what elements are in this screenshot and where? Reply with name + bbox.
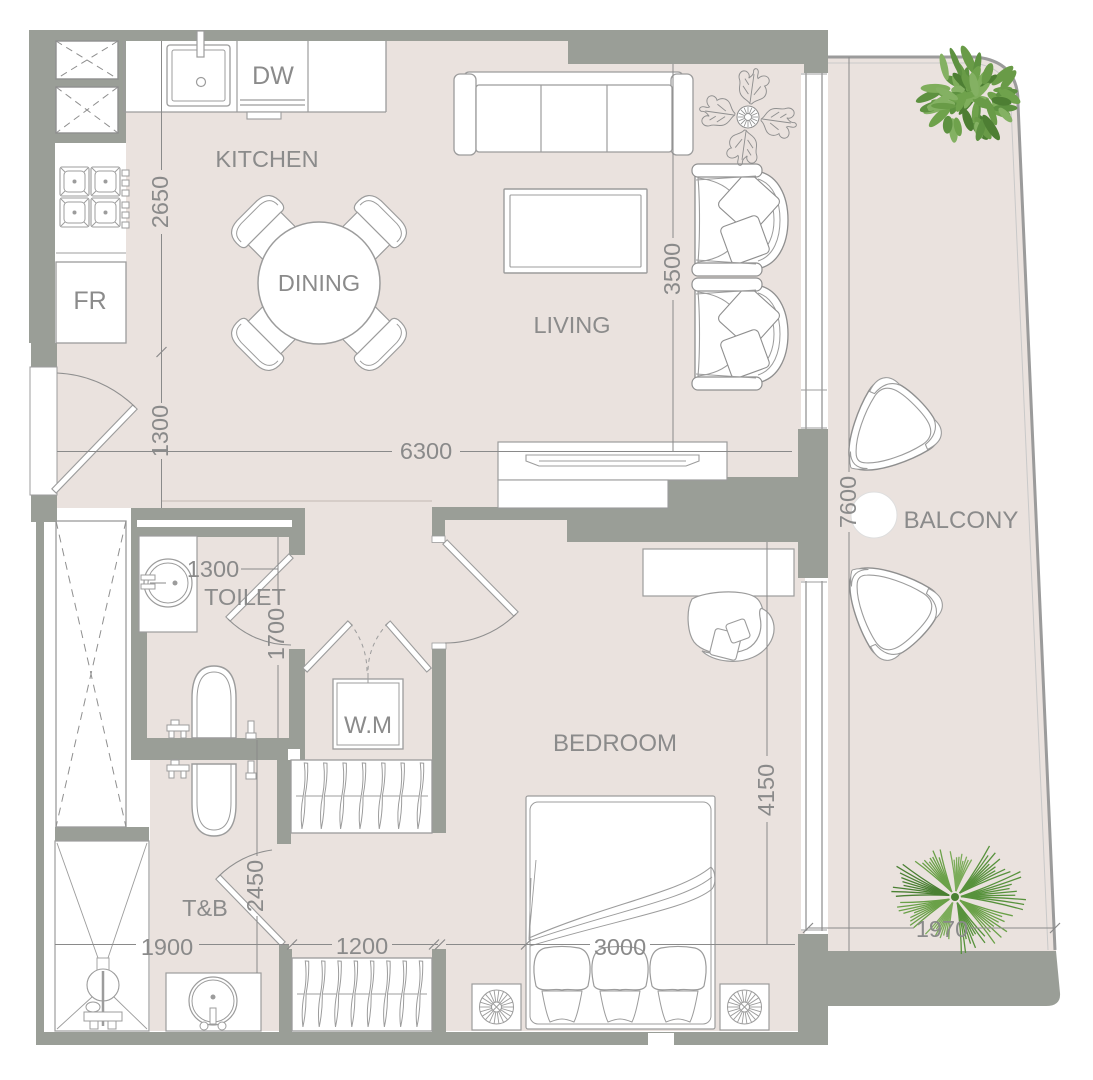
svg-text:1300: 1300 bbox=[187, 556, 239, 582]
svg-text:BALCONY: BALCONY bbox=[904, 507, 1019, 534]
svg-text:TOILET: TOILET bbox=[204, 584, 286, 610]
svg-text:1300: 1300 bbox=[147, 405, 173, 457]
svg-text:DINING: DINING bbox=[278, 270, 360, 296]
svg-text:3500: 3500 bbox=[659, 243, 685, 295]
svg-text:2650: 2650 bbox=[147, 176, 173, 228]
svg-text:4150: 4150 bbox=[753, 764, 779, 816]
svg-text:1970: 1970 bbox=[916, 916, 968, 942]
svg-text:2450: 2450 bbox=[242, 860, 268, 912]
svg-text:T&B: T&B bbox=[182, 895, 228, 921]
svg-text:1200: 1200 bbox=[336, 933, 388, 959]
svg-text:KITCHEN: KITCHEN bbox=[215, 146, 318, 172]
svg-text:LIVING: LIVING bbox=[533, 312, 610, 338]
svg-text:7600: 7600 bbox=[835, 476, 861, 528]
svg-text:DW: DW bbox=[252, 62, 294, 90]
svg-text:6300: 6300 bbox=[400, 438, 452, 464]
svg-text:W.M: W.M bbox=[344, 712, 392, 739]
svg-text:3000: 3000 bbox=[594, 934, 646, 960]
svg-text:1900: 1900 bbox=[141, 934, 193, 960]
svg-text:BEDROOM: BEDROOM bbox=[553, 730, 677, 757]
svg-text:FR: FR bbox=[73, 287, 106, 315]
svg-text:1700: 1700 bbox=[263, 608, 289, 660]
